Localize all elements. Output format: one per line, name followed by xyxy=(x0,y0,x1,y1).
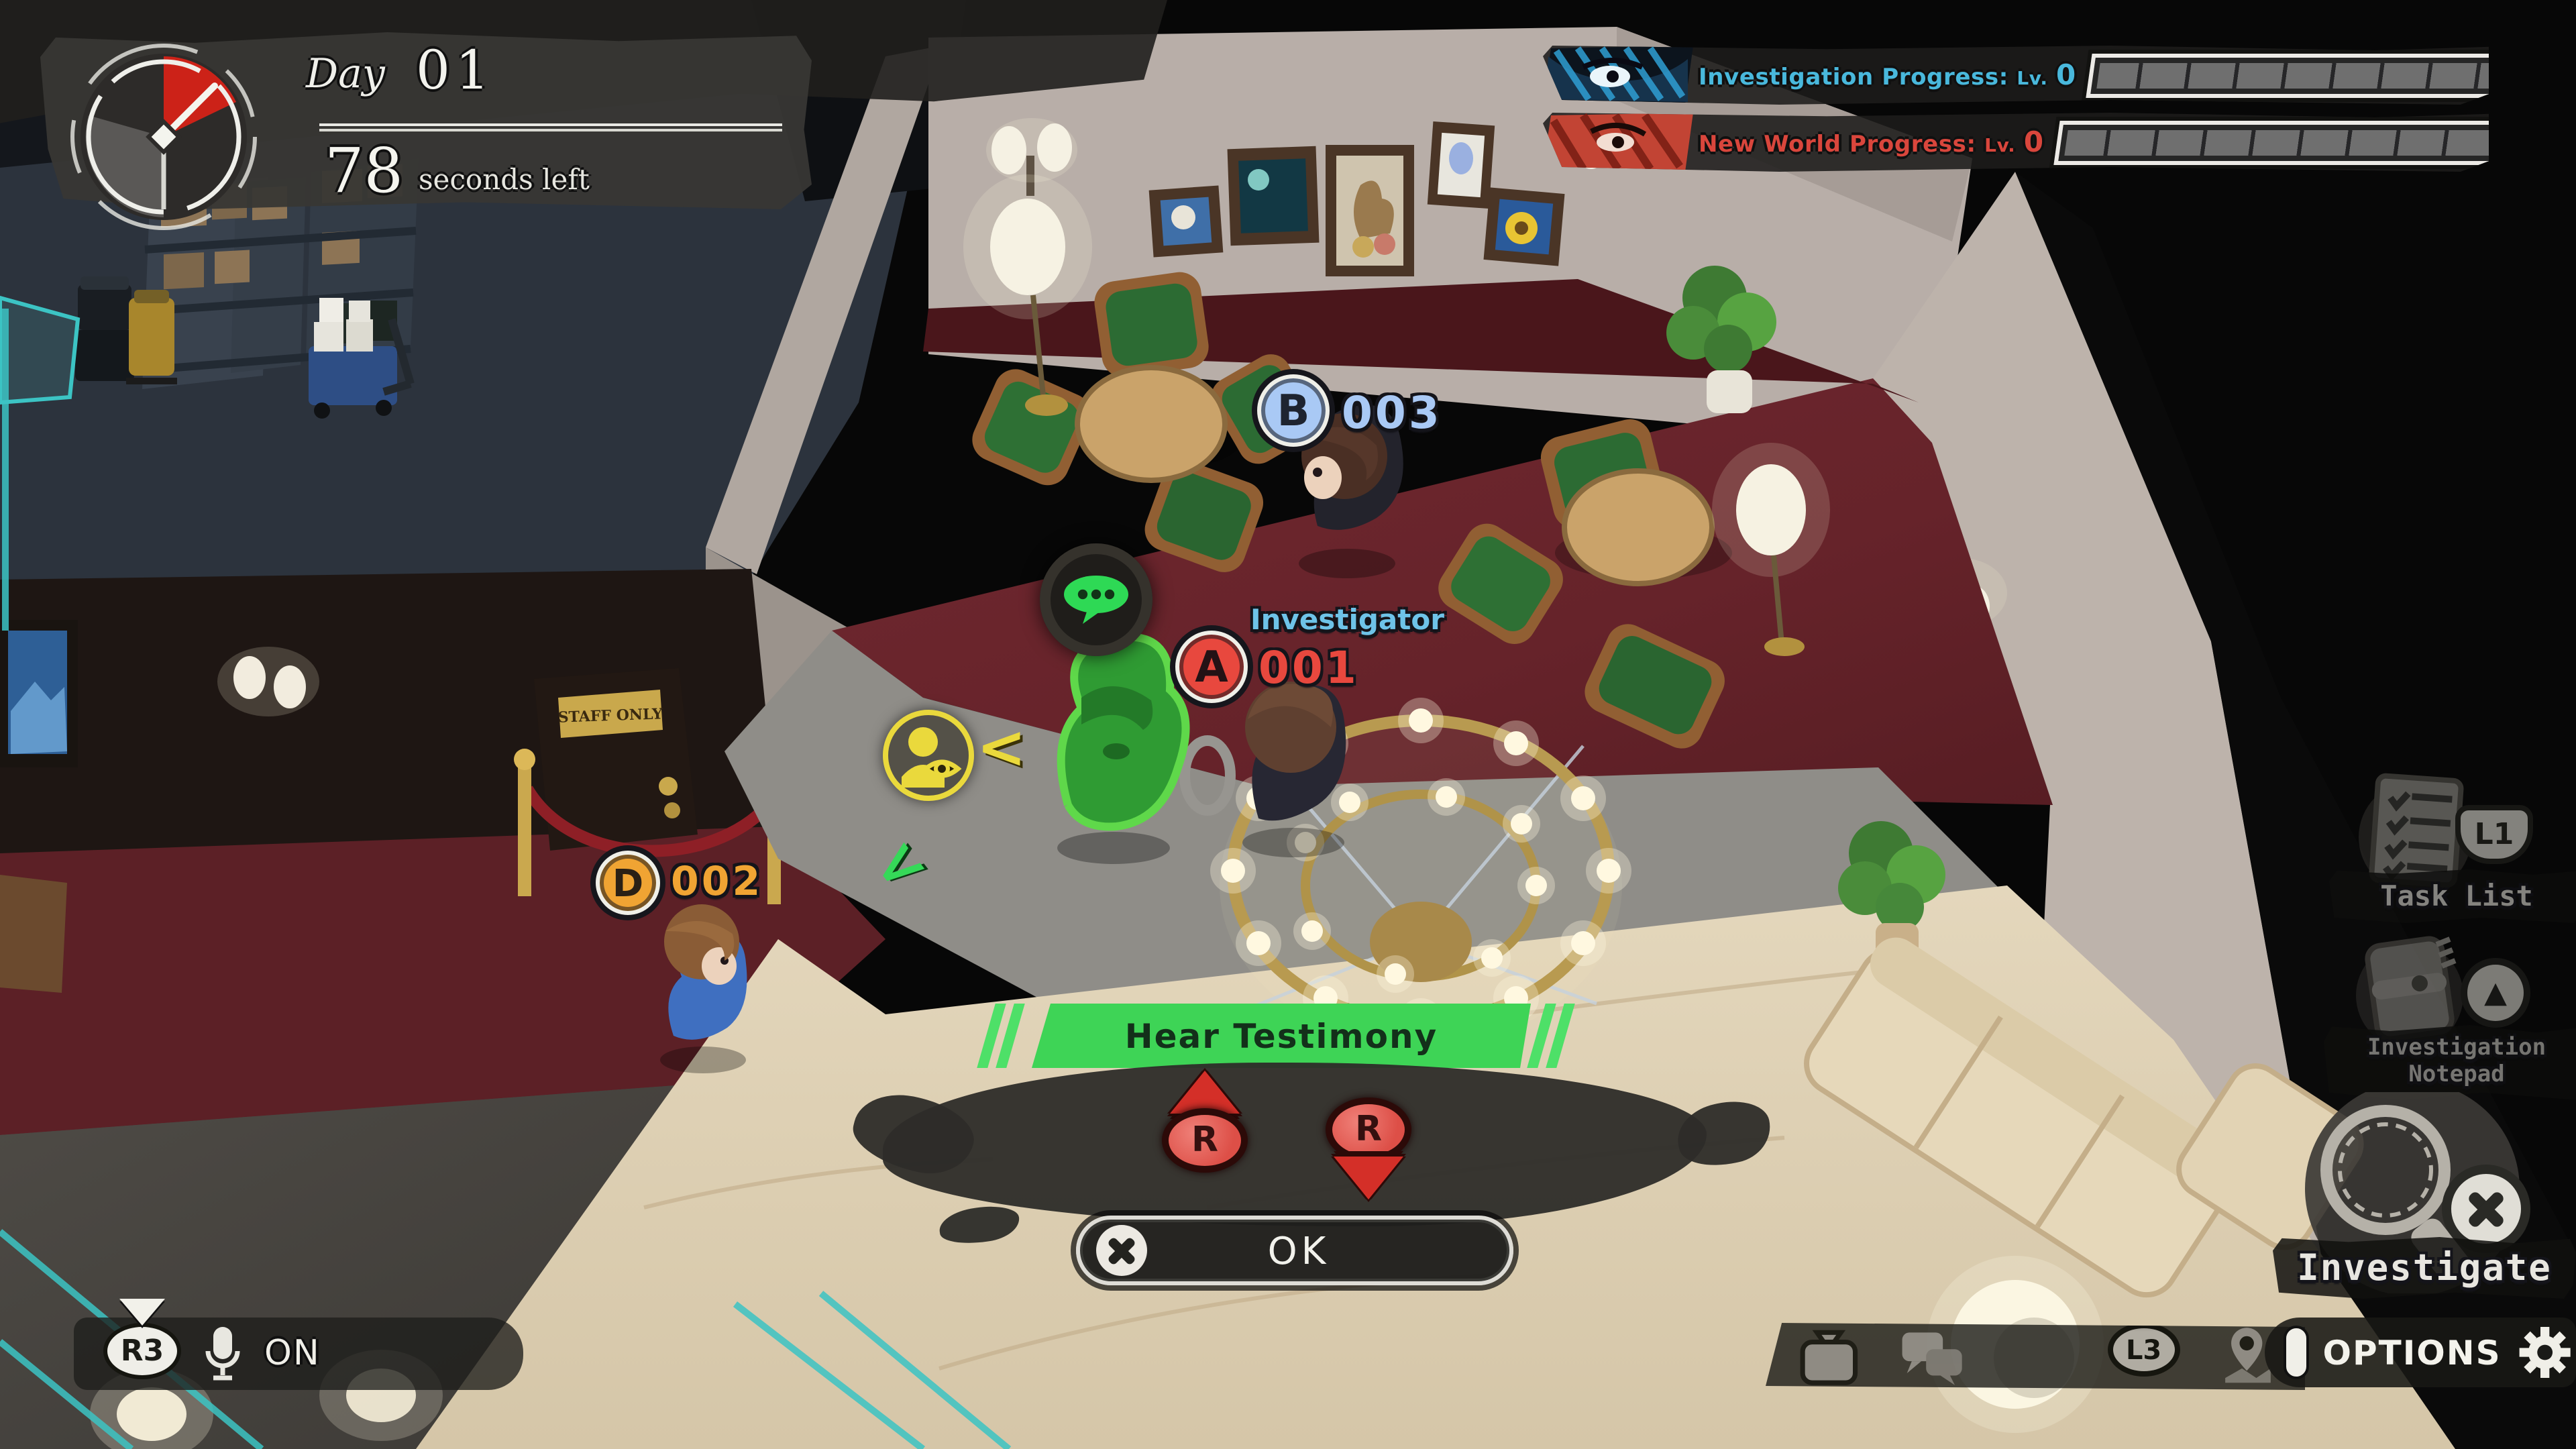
seconds-label: seconds left xyxy=(419,164,590,196)
game-screen: STAFF ONLY xyxy=(0,0,2576,1449)
l1-button-badge: L1 xyxy=(2455,805,2533,864)
painting-fish xyxy=(1428,121,1495,209)
ok-button[interactable]: OK xyxy=(1076,1216,1513,1285)
investigate-label: Investigate xyxy=(2273,1237,2576,1299)
investigation-portrait-icon xyxy=(1543,46,1693,105)
r-stick-letter: R xyxy=(1191,1120,1218,1161)
triangle-button-badge: ▲ xyxy=(2461,958,2530,1028)
r-stick-letter: R xyxy=(1355,1110,1382,1150)
day-clock-icon xyxy=(64,35,263,233)
round-table xyxy=(1077,368,1225,480)
talk-indicator[interactable] xyxy=(1040,543,1152,656)
action-prompt-title: Hear Testimony xyxy=(1125,1016,1438,1055)
notepad-label: Investigation Notepad xyxy=(2324,1025,2576,1100)
witness-eye-icon xyxy=(888,715,969,796)
new-world-portrait-icon xyxy=(1543,113,1693,172)
l3-label: L3 xyxy=(2126,1334,2161,1366)
investigation-progress-row: Investigation Progress: Lv. 0 xyxy=(1543,46,2489,105)
seconds-value: 78 xyxy=(325,134,403,207)
options-label: OPTIONS xyxy=(2322,1333,2501,1372)
r-stick-down-prompt[interactable]: R xyxy=(1326,1097,1411,1199)
banner-stripes-right xyxy=(1536,1004,1566,1068)
investigation-level-value: 0 xyxy=(2056,59,2076,91)
nameplate-a-badge: A xyxy=(1175,631,1248,703)
painting-night xyxy=(1228,146,1320,246)
nameplate-b-letter: B xyxy=(1277,385,1310,436)
new-world-progress-bar xyxy=(2054,120,2551,164)
chat-bubbles-icon[interactable] xyxy=(1900,1324,1965,1389)
options-pad-icon xyxy=(2284,1326,2309,1379)
door-sign: STAFF ONLY xyxy=(557,705,663,726)
nameplate-b-badge: B xyxy=(1257,374,1330,447)
cross-button-icon xyxy=(1096,1225,1147,1276)
r-stick-up-icon xyxy=(1170,1071,1240,1114)
observe-indicator[interactable] xyxy=(883,710,974,801)
investigator-title: Investigator xyxy=(1250,604,1444,636)
level-prefix: Lv. xyxy=(2017,68,2047,90)
l1-button-label: L1 xyxy=(2475,818,2514,851)
ink-splash xyxy=(883,1063,1707,1226)
microphone-icon xyxy=(203,1324,243,1383)
round-table xyxy=(1564,471,1712,584)
notepad-shortcut[interactable]: ▲ Investigation Notepad xyxy=(2337,939,2576,1095)
day-value: 01 xyxy=(416,40,495,102)
settings-gear-icon xyxy=(2515,1320,2576,1385)
notepad-label-line1: Investigation xyxy=(2367,1036,2546,1063)
nameplate-a-letter: A xyxy=(1195,641,1228,692)
nameplate-a-number: 001 xyxy=(1258,641,1359,694)
mic-status: ON xyxy=(264,1334,321,1374)
r3-button[interactable]: R3 xyxy=(103,1299,181,1379)
r3-label: R3 xyxy=(121,1334,164,1368)
side-table xyxy=(0,875,67,993)
touchpad-icon[interactable] xyxy=(1798,1322,1860,1391)
banner-stripes-left xyxy=(986,1004,1016,1068)
painting-clown xyxy=(1149,185,1224,257)
new-world-progress-label: New World Progress: xyxy=(1699,131,1976,158)
armchair xyxy=(1091,270,1211,380)
options-button[interactable]: OPTIONS xyxy=(2265,1318,2576,1387)
cleaning-cart xyxy=(126,290,177,381)
action-prompt-banner: Hear Testimony xyxy=(1032,1004,1531,1068)
speech-bubble-icon xyxy=(1061,573,1131,627)
r3-press-icon xyxy=(119,1299,165,1326)
level-prefix: Lv. xyxy=(1984,136,2015,157)
nameplate-d-number: 002 xyxy=(671,859,763,906)
bottom-icon-bar: L3 xyxy=(1766,1323,2305,1390)
investigation-progress-label: Investigation Progress: xyxy=(1699,64,2008,91)
observe-arrow-icon: < xyxy=(977,719,1026,778)
timer-divider xyxy=(319,123,782,131)
painting-sunflower xyxy=(1484,187,1565,266)
task-list-shortcut[interactable]: L1 Task List xyxy=(2337,775,2576,931)
ok-button-label: OK xyxy=(1147,1228,1450,1273)
r-stick-down-icon xyxy=(1334,1157,1403,1199)
voice-chat-bar: R3 ON xyxy=(74,1318,523,1390)
day-label: Day xyxy=(306,51,385,98)
new-world-level-value: 0 xyxy=(2024,126,2044,158)
investigate-shortcut[interactable]: Investigate xyxy=(2278,1108,2576,1309)
task-list-label: Task List xyxy=(2329,869,2576,923)
wall-sconce xyxy=(217,647,319,716)
painting-still-life xyxy=(1326,145,1414,276)
r-stick-up-prompt[interactable]: R xyxy=(1162,1071,1248,1173)
new-world-progress-row: New World Progress: Lv. 0 xyxy=(1543,113,2489,172)
notepad-label-line2: Notepad xyxy=(2408,1063,2504,1089)
nameplate-d-badge: D xyxy=(596,851,660,915)
storage-bins xyxy=(75,276,134,381)
nameplate-b-number: 003 xyxy=(1342,386,1442,439)
nameplate-d-letter: D xyxy=(612,861,644,905)
